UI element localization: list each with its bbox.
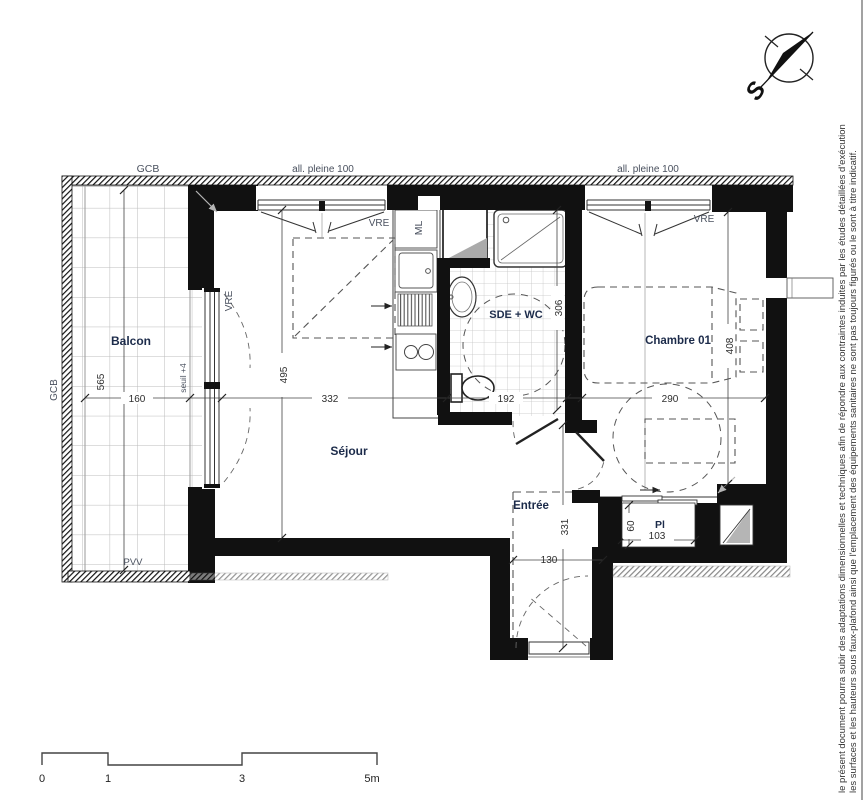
room-label-sde: SDE + WC	[489, 309, 543, 321]
sejour-table-zone	[293, 238, 395, 338]
all-pleine-left-label: all. pleine 100	[292, 164, 354, 175]
scale-bar: 0 1 3 5m	[39, 753, 380, 785]
dim-chambre-width: 290	[662, 394, 679, 405]
disclaimer-line2: les surfaces et les hauteurs sous faux-p…	[848, 150, 859, 793]
dim-sde-height: 306	[554, 299, 565, 316]
dim-entree-width: 130	[541, 555, 558, 566]
vre-sejour-label: VRE	[369, 218, 390, 229]
niche	[720, 505, 753, 545]
scale-3: 3	[239, 773, 245, 785]
desk-zone	[645, 419, 735, 463]
dim-pl-height: 60	[626, 520, 637, 532]
dim-balcon-height: 565	[96, 373, 107, 390]
dim-sejour-height: 495	[279, 366, 290, 383]
dim-sde-width: 192	[498, 394, 515, 405]
disclaimer-line1: le présent document pourra subir des ada…	[837, 124, 848, 793]
sejour-window	[256, 186, 387, 233]
disclaimer: le présent document pourra subir des ada…	[837, 0, 862, 800]
seuil-label: seuil +4	[178, 363, 188, 393]
duct-notch	[418, 196, 440, 210]
gcb-left-label: GCB	[49, 379, 60, 401]
room-label-pl: Pl	[655, 519, 665, 531]
vre-balcon-label: VRE	[224, 290, 235, 311]
scale-1: 1	[105, 773, 111, 785]
dim-balcon-width: 160	[129, 394, 146, 405]
dim-chambre-height: 408	[725, 337, 736, 354]
pvv-label: PVV	[123, 557, 143, 568]
shower-tray	[494, 210, 567, 267]
bedroom-door	[576, 432, 604, 489]
room-label-balcon: Balcon	[111, 334, 151, 348]
dim-sejour-width: 332	[322, 394, 339, 405]
floor-plan: 565 160 332 495 192 306 290 408 331 130 …	[0, 0, 867, 800]
dim-pl-width: 103	[649, 531, 666, 542]
dim-entree-height: 331	[560, 518, 571, 535]
ml-label: ML	[413, 221, 425, 236]
all-pleine-right-label: all. pleine 100	[617, 164, 679, 175]
right-wall-ledge	[787, 278, 833, 298]
washbasin	[448, 277, 476, 317]
nightstand-2	[740, 341, 763, 372]
vre-chambre-label: VRE	[694, 214, 715, 225]
kitchen-sink	[395, 250, 437, 292]
gcb-top-label: GCB	[137, 163, 160, 175]
bathroom-door	[513, 419, 558, 444]
cooktop	[396, 334, 436, 370]
room-label-entree: Entrée	[513, 500, 549, 512]
scale-5m: 5m	[364, 773, 379, 785]
scale-0: 0	[39, 773, 45, 785]
compass: S	[740, 32, 813, 105]
nightstand-1	[740, 299, 763, 330]
balcony-window-door	[202, 288, 250, 489]
drainer	[398, 294, 432, 326]
kitchen-counter	[371, 208, 440, 418]
chambre-window	[585, 186, 712, 236]
technical-shaft	[443, 208, 487, 262]
room-label-chambre: Chambre 01	[645, 335, 711, 347]
room-label-sejour: Séjour	[330, 444, 368, 458]
